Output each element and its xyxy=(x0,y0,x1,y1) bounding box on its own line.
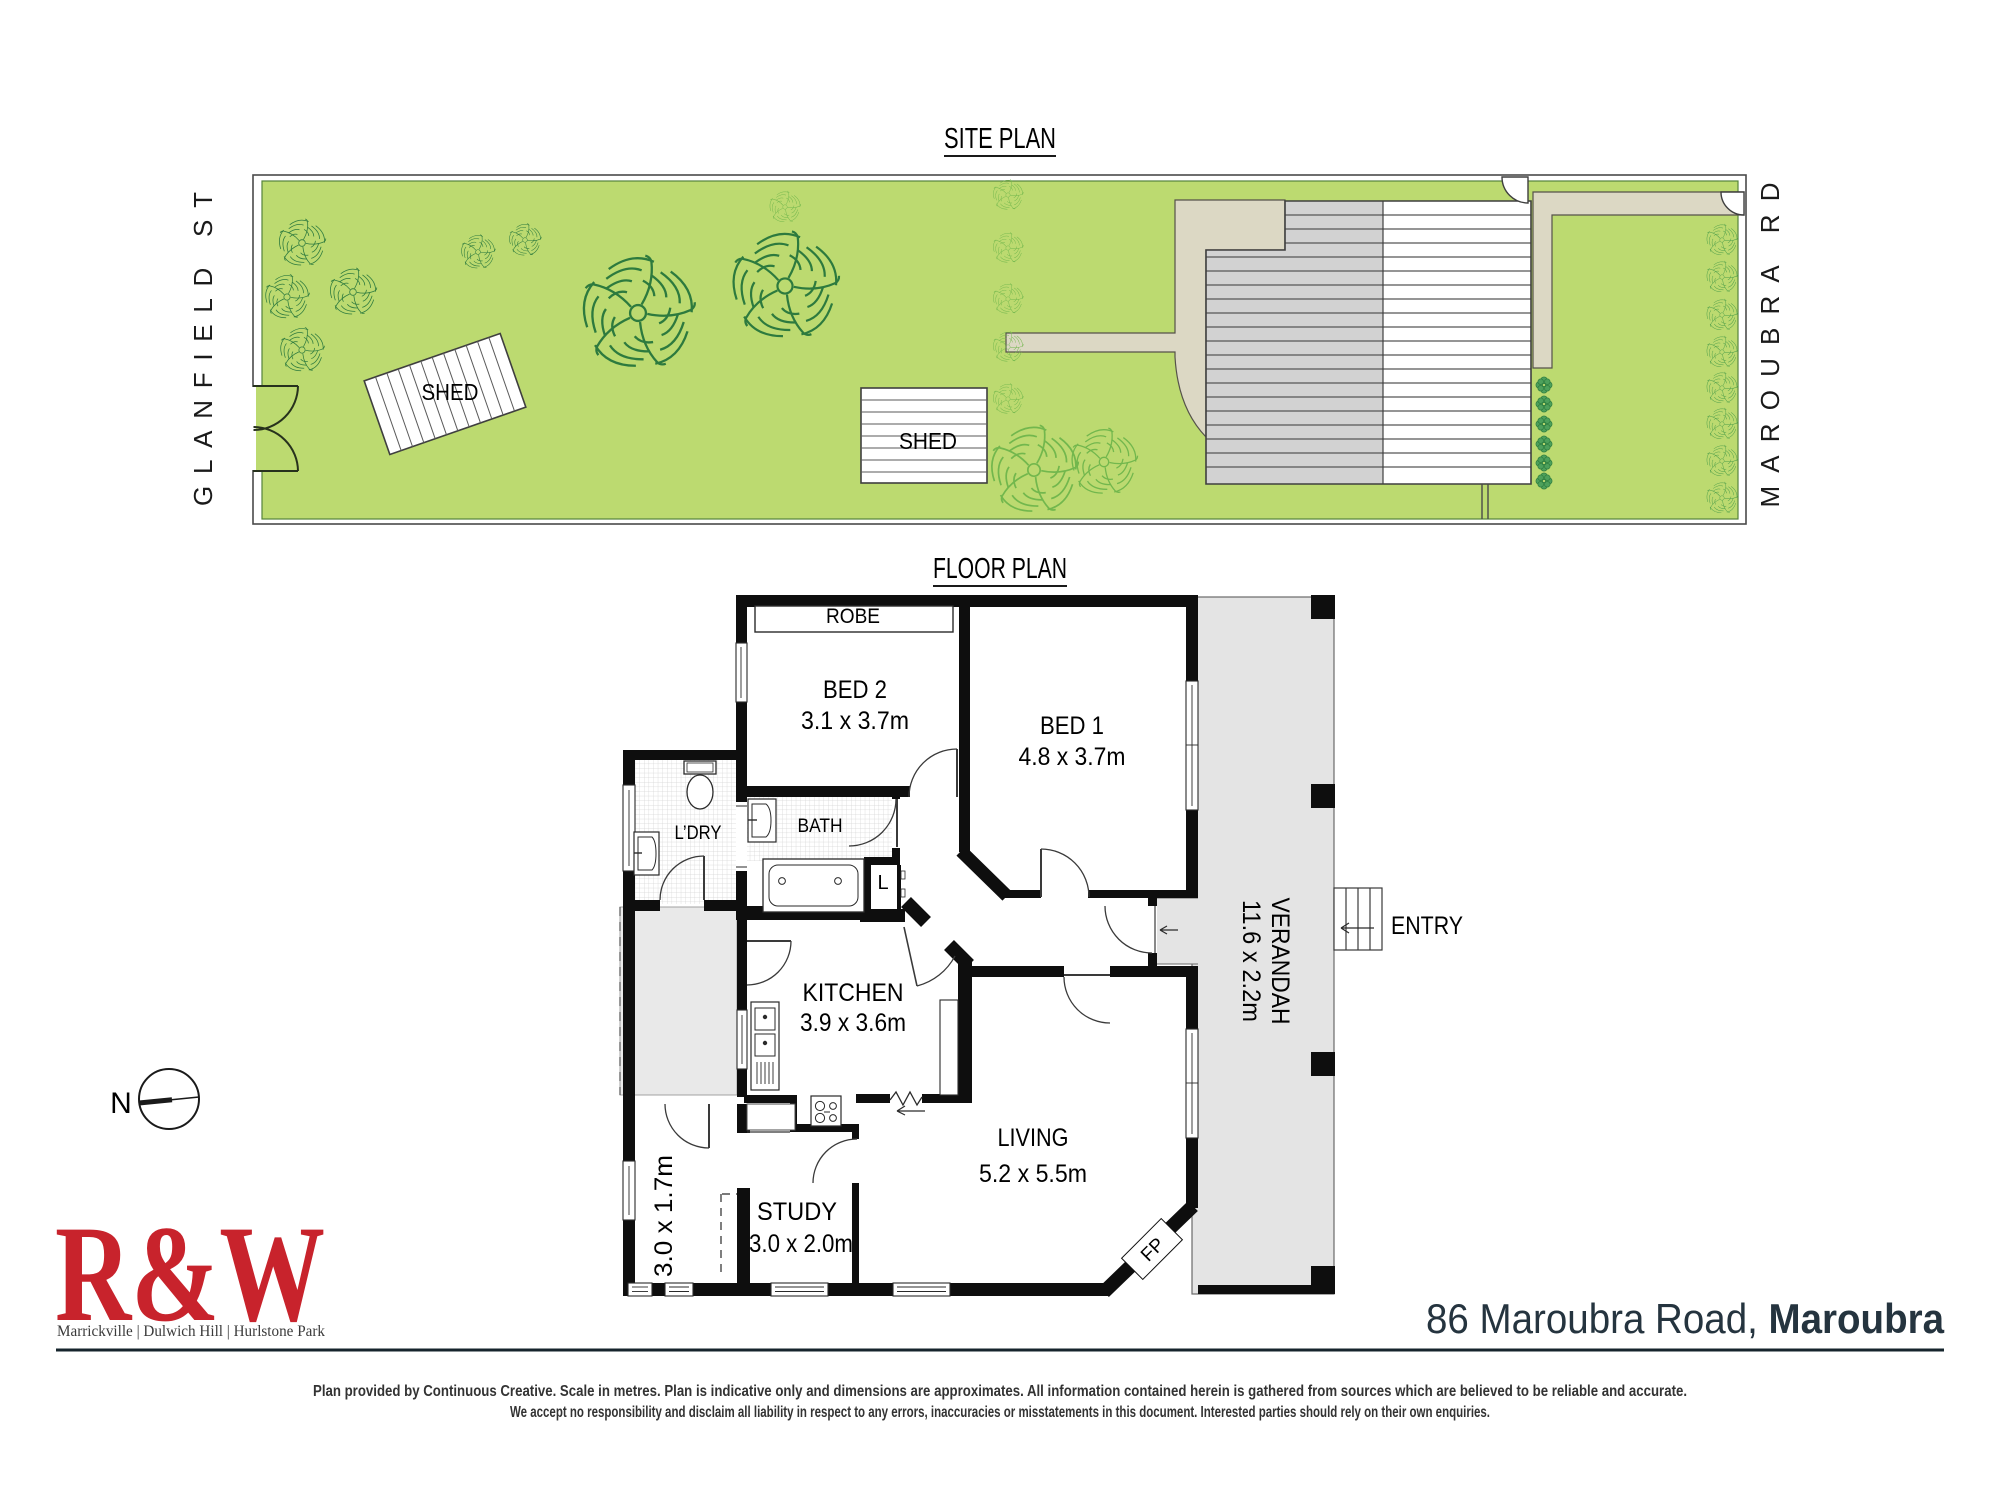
svg-text:VERANDAH: VERANDAH xyxy=(1266,898,1294,1025)
svg-text:86 Maroubra Road, Maroubra: 86 Maroubra Road, Maroubra xyxy=(1426,1295,1945,1342)
svg-text:SITE PLAN: SITE PLAN xyxy=(944,123,1056,155)
svg-text:STUDY: STUDY xyxy=(757,1198,837,1226)
svg-text:5.2 x 5.5m: 5.2 x 5.5m xyxy=(979,1160,1087,1188)
svg-text:MAROUBRA RD: MAROUBRA RD xyxy=(1755,183,1785,508)
svg-text:Plan provided by Continuous Cr: Plan provided by Continuous Creative. Sc… xyxy=(313,1383,1687,1400)
svg-text:ROBE: ROBE xyxy=(826,605,880,628)
svg-text:L: L xyxy=(877,872,888,894)
svg-text:FLOOR PLAN: FLOOR PLAN xyxy=(933,553,1067,585)
svg-text:3.9 x 3.6m: 3.9 x 3.6m xyxy=(800,1009,906,1037)
svg-text:SHED: SHED xyxy=(422,379,479,405)
svg-text:4.8 x 3.7m: 4.8 x 3.7m xyxy=(1019,743,1126,771)
svg-text:LIVING: LIVING xyxy=(998,1124,1069,1152)
svg-text:SHED: SHED xyxy=(899,428,957,454)
svg-text:3.0 x 2.0m: 3.0 x 2.0m xyxy=(749,1230,853,1258)
svg-text:Marrickville | Dulwich Hill |: Marrickville | Dulwich Hill | Hurlstone … xyxy=(57,1323,325,1340)
svg-text:3.1 x 3.7m: 3.1 x 3.7m xyxy=(801,707,909,735)
svg-text:BED 2: BED 2 xyxy=(823,676,887,704)
svg-text:L’DRY: L’DRY xyxy=(675,823,722,844)
svg-text:N: N xyxy=(110,1087,132,1120)
svg-text:ENTRY: ENTRY xyxy=(1391,912,1463,940)
svg-text:We accept no responsibility an: We accept no responsibility and disclaim… xyxy=(510,1404,1490,1421)
svg-text:BED 1: BED 1 xyxy=(1040,712,1104,740)
svg-text:KITCHEN: KITCHEN xyxy=(803,979,904,1007)
svg-text:GLANFIELD ST: GLANFIELD ST xyxy=(188,192,218,506)
svg-text:BATH: BATH xyxy=(798,816,843,837)
svg-text:11.6 x 2.2m: 11.6 x 2.2m xyxy=(1237,900,1265,1022)
svg-text:3.0 x 1.7m: 3.0 x 1.7m xyxy=(650,1155,678,1277)
